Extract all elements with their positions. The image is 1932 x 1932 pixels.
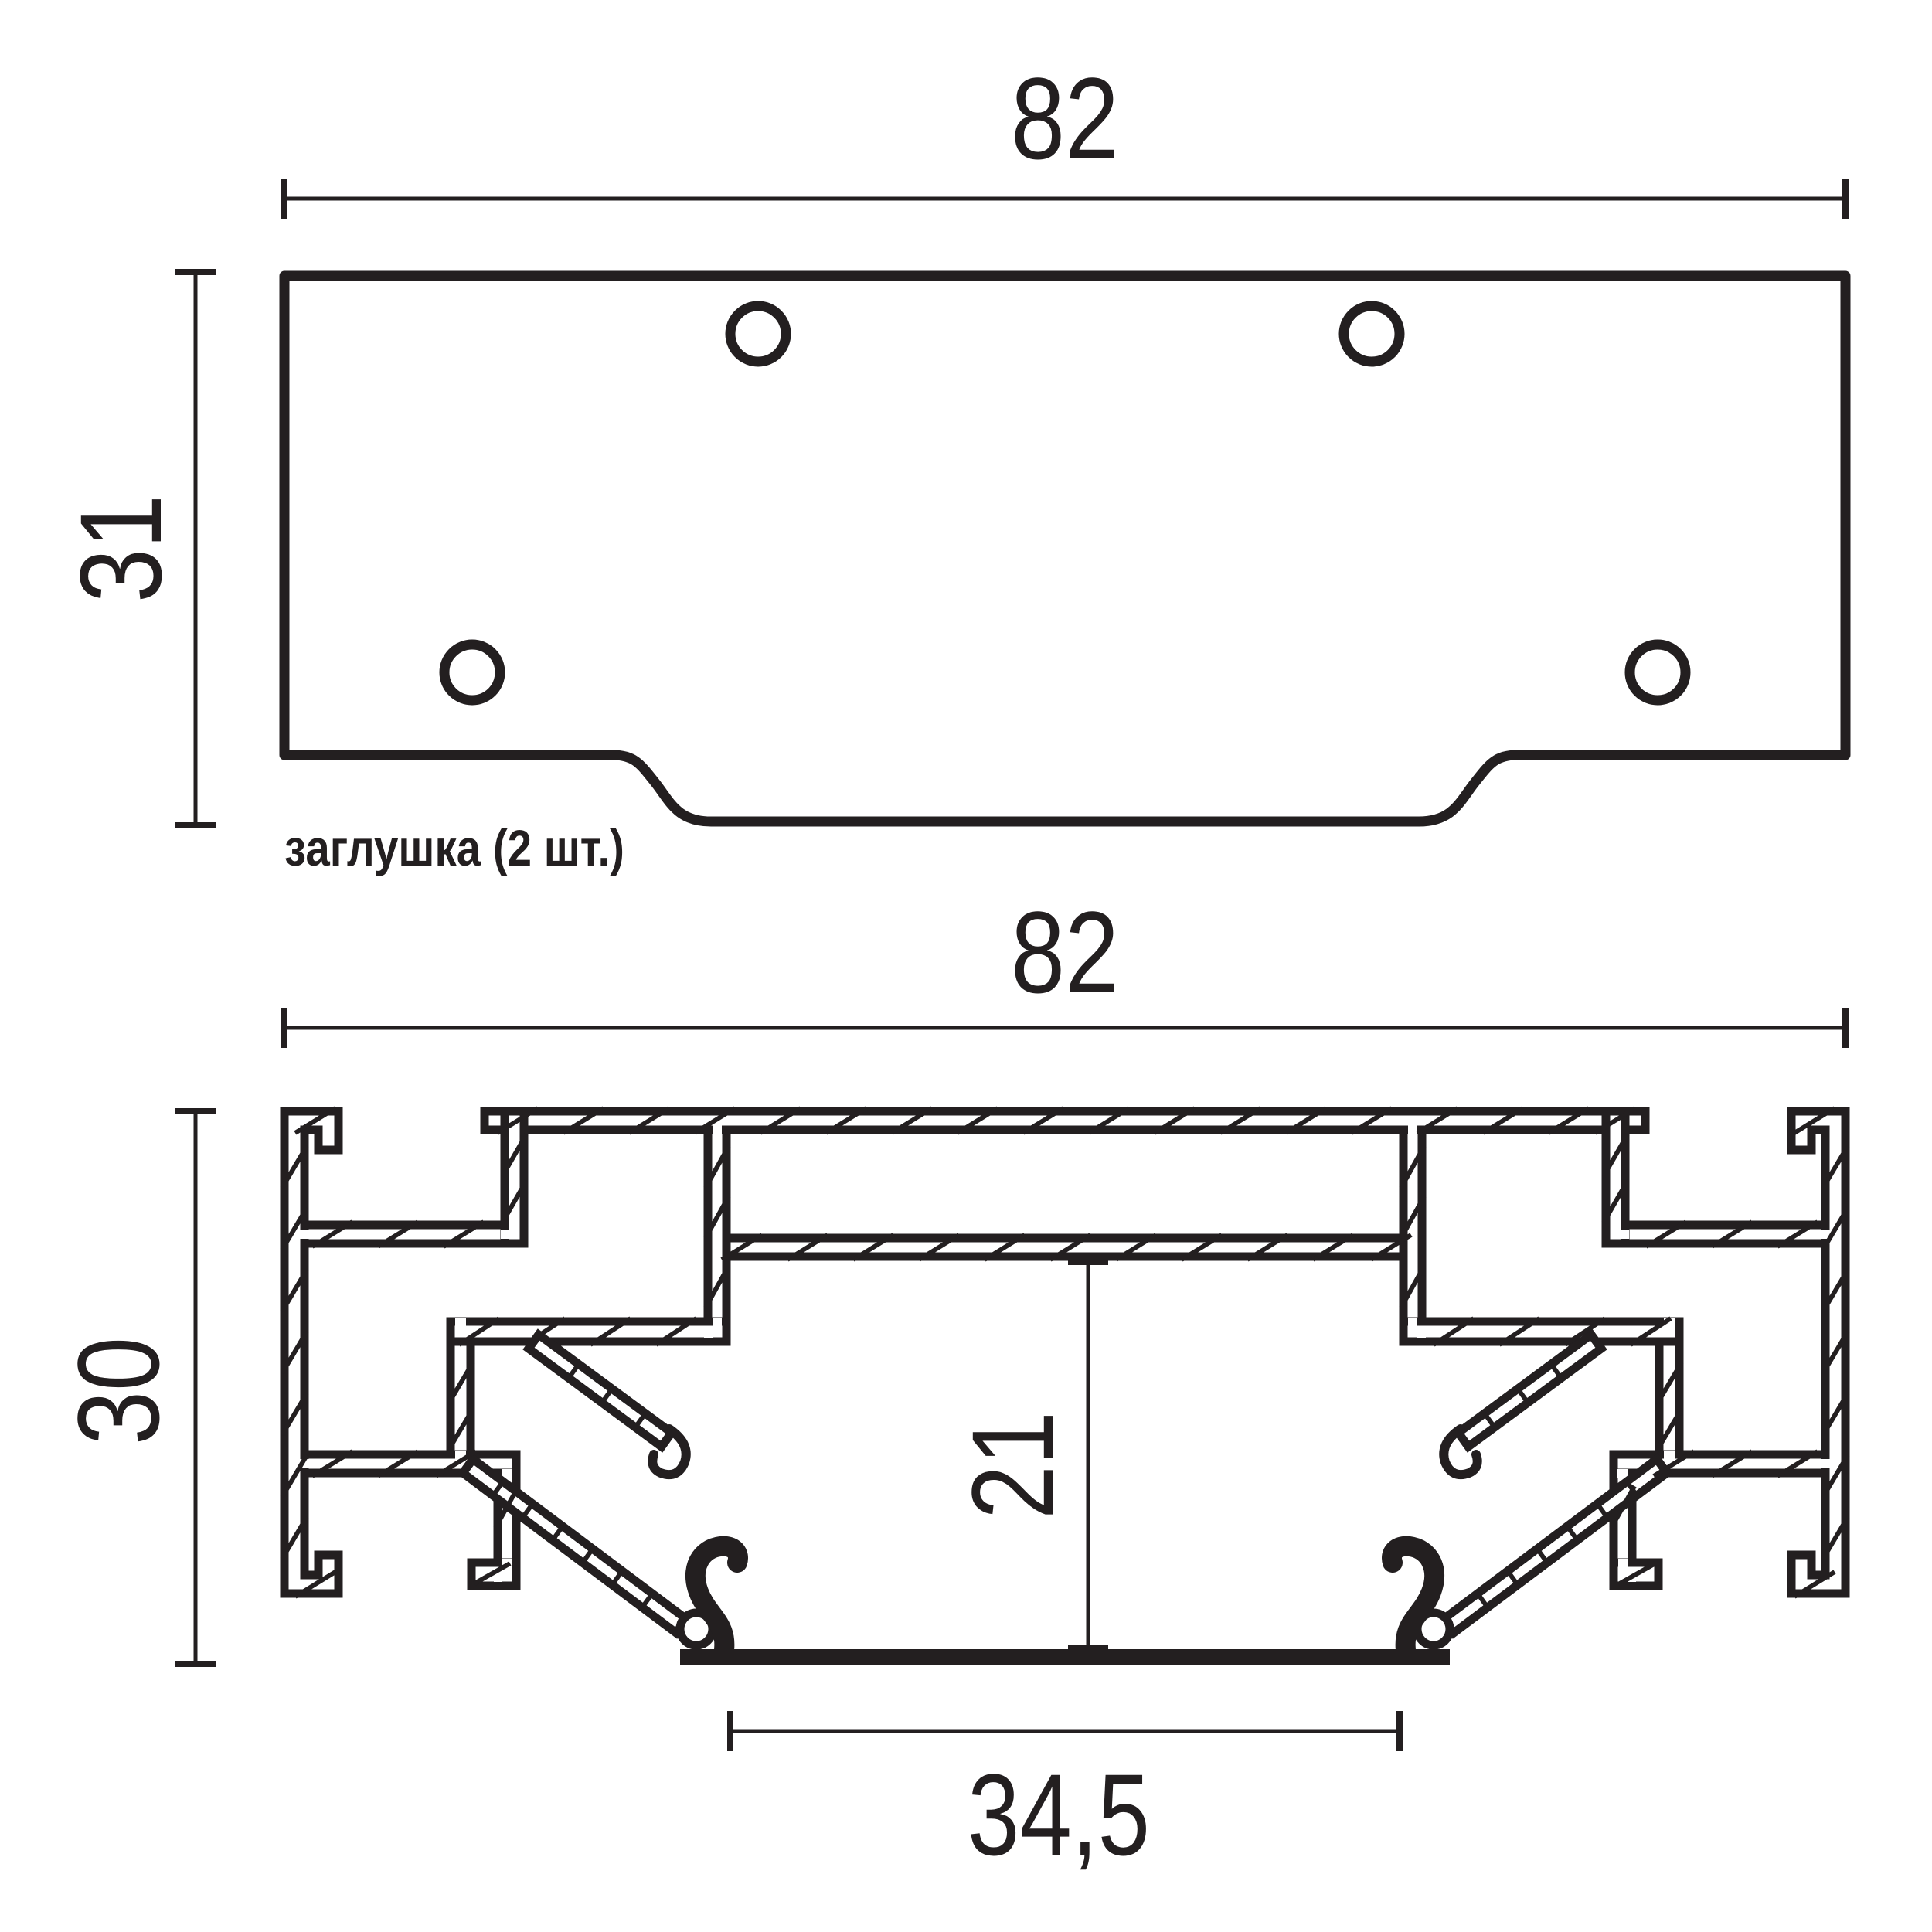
endcap-outline — [284, 276, 1845, 821]
section-opening-value: 34,5 — [968, 1750, 1150, 1879]
section-dim-opening: 34,5 — [730, 1711, 1400, 1879]
technical-drawing: 82 31 заглушка (2 шт.) 82 — [0, 0, 1932, 1932]
endcap-dim-width: 82 — [284, 53, 1845, 219]
endcap-dim-height: 31 — [56, 272, 216, 825]
profile-base-walls — [485, 1111, 1645, 1257]
section-inner-height-value: 21 — [947, 1411, 1077, 1519]
endcap-label: заглушка (2 шт.) — [284, 819, 624, 876]
section-width-value: 82 — [1011, 887, 1119, 1017]
endcap-hole — [730, 306, 786, 362]
bottom-shelf — [680, 1649, 1450, 1665]
endcap-height-value: 31 — [56, 495, 185, 603]
section-view: 82 30 — [53, 887, 1848, 1879]
section-dim-inner-height: 21 — [947, 1262, 1108, 1649]
section-dim-height: 30 — [53, 1111, 216, 1664]
endcap-hole — [444, 645, 500, 700]
endcap-hole — [1630, 645, 1685, 700]
spring-arm-upper — [529, 1335, 686, 1475]
endcap-width-value: 82 — [1011, 53, 1119, 183]
section-height-value: 30 — [53, 1337, 183, 1445]
endcap-hole — [1344, 306, 1400, 362]
endcap-view: 82 31 заглушка (2 шт.) — [56, 53, 1845, 876]
profile-half — [284, 1111, 738, 1655]
section-dim-width: 82 — [284, 887, 1845, 1048]
